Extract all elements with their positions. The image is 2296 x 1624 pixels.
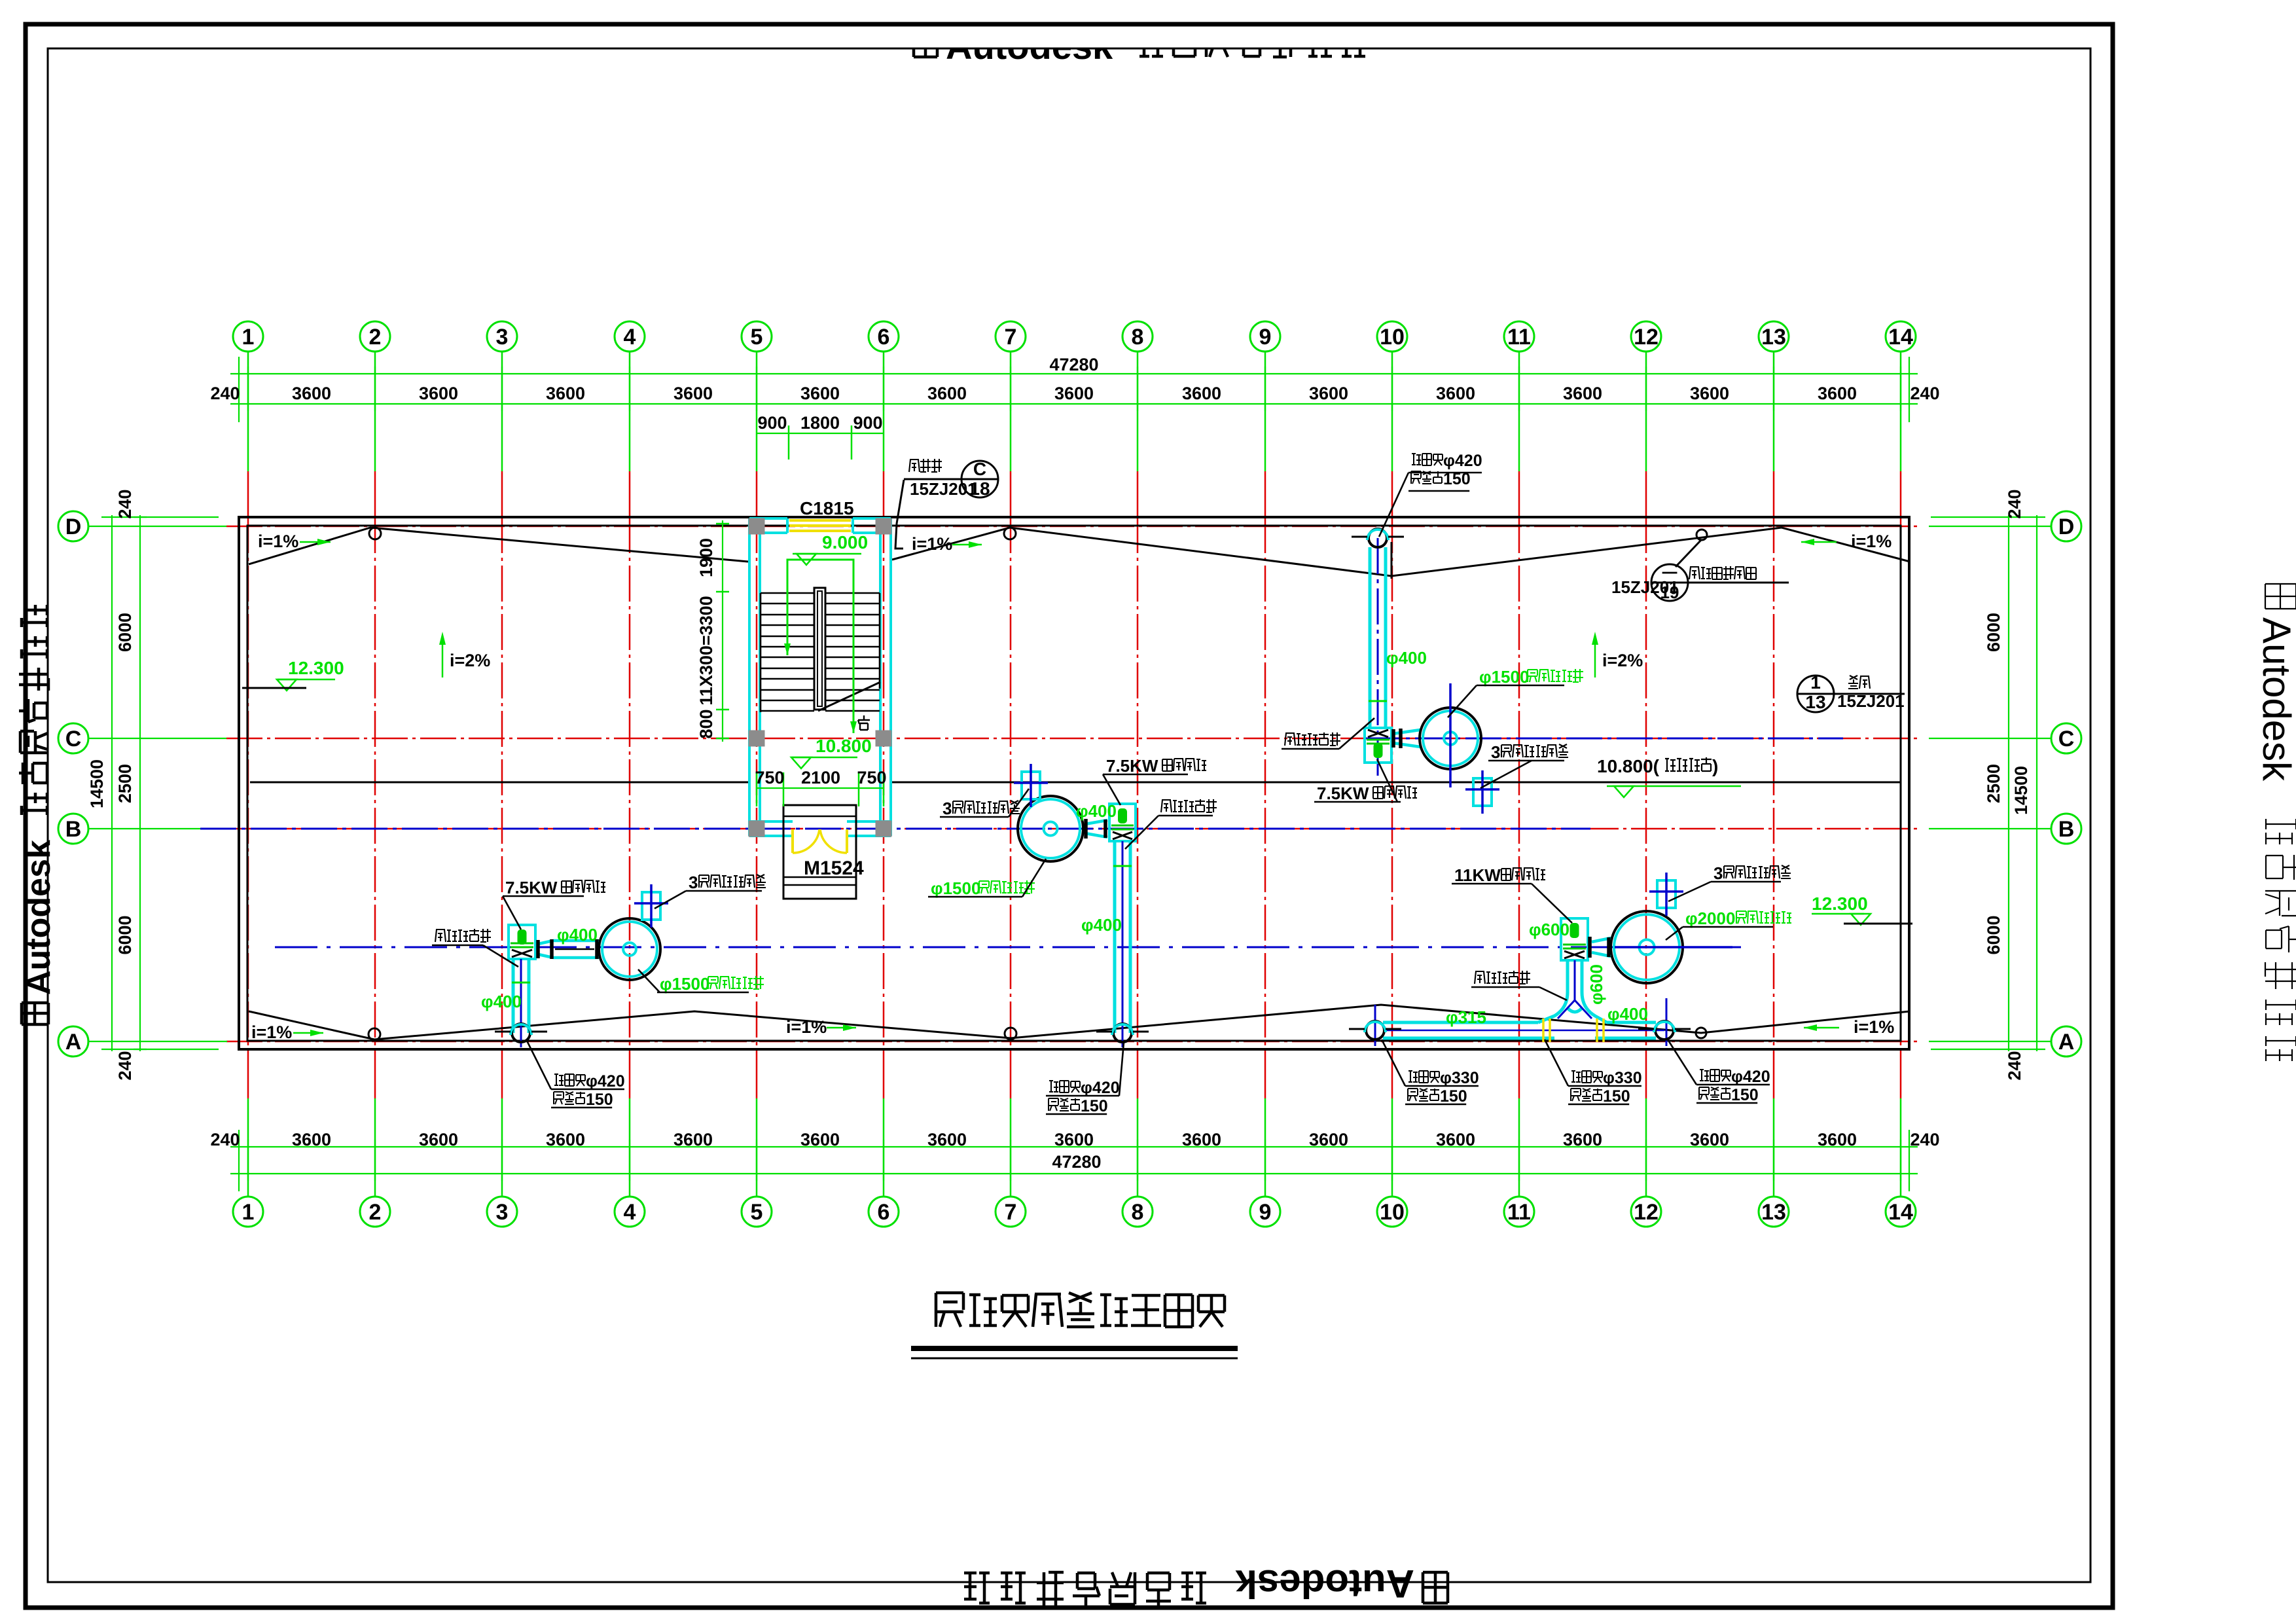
svg-text:3600: 3600	[419, 384, 458, 403]
svg-text:1800: 1800	[800, 413, 840, 433]
svg-text:6000: 6000	[115, 613, 135, 652]
svg-text:4: 4	[624, 1200, 636, 1225]
svg-text:240: 240	[2005, 1051, 2024, 1080]
svg-text:3600: 3600	[1182, 1130, 1221, 1149]
svg-text:φ315: φ315	[1446, 1007, 1486, 1027]
svg-text:14: 14	[1888, 325, 1913, 350]
svg-text:2: 2	[369, 325, 382, 350]
svg-text:φ400: φ400	[557, 925, 598, 945]
svg-text:6: 6	[878, 325, 890, 350]
svg-text:3600: 3600	[292, 1130, 331, 1149]
svg-text:750: 750	[755, 768, 784, 787]
svg-text:φ420: φ420	[586, 1072, 625, 1091]
svg-text:7.5KW: 7.5KW	[505, 878, 558, 897]
svg-text:φ1500: φ1500	[1479, 667, 1529, 687]
svg-text:47280: 47280	[1049, 355, 1098, 374]
svg-text:1: 1	[1810, 672, 1821, 693]
svg-text:900: 900	[853, 413, 882, 433]
svg-text:7.5KW: 7.5KW	[1317, 784, 1369, 803]
svg-text:i=1%: i=1%	[1851, 532, 1892, 551]
svg-text:10.800: 10.800	[816, 736, 872, 756]
svg-text:M1524: M1524	[804, 857, 864, 879]
svg-text:3600: 3600	[800, 1130, 840, 1149]
svg-text:2100: 2100	[801, 768, 840, 787]
svg-text:12: 12	[1634, 325, 1659, 350]
svg-text:240: 240	[1910, 384, 1939, 403]
svg-text:3600: 3600	[927, 384, 967, 403]
svg-text:3: 3	[1491, 742, 1500, 762]
svg-text:3600: 3600	[1054, 1130, 1094, 1149]
svg-text:φ600: φ600	[1587, 964, 1606, 1005]
svg-text:C: C	[65, 727, 82, 751]
svg-text:7: 7	[1005, 1200, 1017, 1225]
svg-text:): )	[1712, 756, 1718, 776]
svg-text:3600: 3600	[1563, 384, 1602, 403]
svg-text:A: A	[65, 1030, 82, 1055]
svg-text:3600: 3600	[1436, 384, 1475, 403]
svg-text:B: B	[65, 817, 82, 842]
svg-text:10: 10	[1380, 325, 1405, 350]
svg-text:i=2%: i=2%	[450, 651, 490, 670]
svg-text:φ1500: φ1500	[931, 878, 980, 898]
svg-text:Autodesk: Autodesk	[1235, 1562, 1414, 1606]
svg-text:240: 240	[115, 1051, 135, 1080]
svg-text:240: 240	[115, 489, 135, 518]
svg-text:Autodesk: Autodesk	[2255, 617, 2296, 782]
svg-text:φ2000: φ2000	[1685, 909, 1735, 928]
svg-text:150: 150	[1603, 1087, 1630, 1106]
svg-text:3600: 3600	[1054, 384, 1094, 403]
svg-text:15ZJ201: 15ZJ201	[1837, 691, 1905, 711]
svg-text:9: 9	[1259, 325, 1272, 350]
svg-text:7: 7	[1005, 325, 1017, 350]
svg-text:12.300: 12.300	[1812, 893, 1868, 914]
svg-text:3600: 3600	[1690, 384, 1729, 403]
svg-text:1900: 1900	[696, 538, 716, 577]
svg-text:φ400: φ400	[1081, 915, 1122, 935]
svg-text:12.300: 12.300	[288, 658, 344, 678]
svg-text:2500: 2500	[115, 764, 135, 803]
svg-text:900: 900	[757, 413, 787, 433]
svg-text:750: 750	[857, 768, 886, 787]
svg-text:C: C	[2058, 727, 2075, 751]
svg-text:i=2%: i=2%	[1602, 651, 1643, 670]
svg-text:6000: 6000	[115, 915, 135, 954]
svg-text:i=1%: i=1%	[251, 1022, 292, 1042]
svg-text:i=1%: i=1%	[912, 534, 952, 554]
svg-text:i=1%: i=1%	[1854, 1017, 1894, 1037]
svg-text:φ400: φ400	[1607, 1004, 1648, 1024]
svg-text:3: 3	[1713, 863, 1723, 883]
svg-text:14500: 14500	[87, 759, 107, 808]
svg-text:2500: 2500	[1984, 764, 2003, 803]
svg-text:A: A	[2058, 1030, 2075, 1055]
svg-text:5: 5	[751, 325, 763, 350]
svg-text:9.000: 9.000	[822, 532, 868, 552]
svg-text:6000: 6000	[1984, 915, 2003, 954]
svg-text:9: 9	[1259, 1200, 1272, 1225]
svg-text:3: 3	[496, 1200, 509, 1225]
svg-text:3: 3	[942, 799, 952, 818]
svg-text:C1815: C1815	[800, 498, 854, 518]
svg-text:φ400: φ400	[481, 992, 522, 1011]
svg-text:2: 2	[369, 1200, 382, 1225]
svg-text:10: 10	[1380, 1200, 1405, 1225]
svg-text:3600: 3600	[1690, 1130, 1729, 1149]
svg-text:15ZJ201: 15ZJ201	[1611, 577, 1679, 597]
svg-text:14500: 14500	[2011, 766, 2031, 815]
svg-text:φ1500: φ1500	[660, 974, 709, 994]
svg-text:800: 800	[696, 709, 716, 738]
svg-text:3600: 3600	[800, 384, 840, 403]
svg-text:13: 13	[1761, 325, 1786, 350]
svg-text:3600: 3600	[546, 384, 585, 403]
svg-text:3600: 3600	[546, 1130, 585, 1149]
svg-text:3600: 3600	[1309, 384, 1348, 403]
svg-text:3: 3	[496, 325, 509, 350]
svg-text:3600: 3600	[673, 384, 713, 403]
svg-text:φ420: φ420	[1443, 452, 1482, 470]
svg-text:15ZJ201: 15ZJ201	[910, 479, 977, 499]
svg-text:6000: 6000	[1984, 613, 2003, 652]
svg-text:i=1%: i=1%	[258, 532, 298, 551]
svg-text:240: 240	[210, 384, 240, 403]
svg-text:150: 150	[1731, 1086, 1759, 1104]
svg-text:3600: 3600	[1309, 1130, 1348, 1149]
svg-text:φ330: φ330	[1440, 1069, 1479, 1087]
svg-text:1: 1	[242, 1200, 255, 1225]
svg-text:11: 11	[1507, 325, 1531, 350]
svg-text:C: C	[973, 459, 986, 479]
svg-text:B: B	[2058, 817, 2075, 842]
svg-text:11KW: 11KW	[1454, 865, 1501, 885]
svg-text:i=1%: i=1%	[786, 1017, 827, 1037]
svg-text:4: 4	[624, 325, 636, 350]
svg-text:3600: 3600	[927, 1130, 967, 1149]
svg-text:6: 6	[878, 1200, 890, 1225]
svg-text:240: 240	[1910, 1130, 1939, 1149]
svg-text:150: 150	[586, 1091, 613, 1109]
svg-text:3600: 3600	[1563, 1130, 1602, 1149]
svg-text:11: 11	[1507, 1200, 1531, 1225]
svg-text:10.800(: 10.800(	[1597, 756, 1660, 776]
svg-text:φ400: φ400	[1076, 801, 1117, 821]
svg-text:D: D	[2058, 514, 2075, 539]
svg-text:3600: 3600	[1182, 384, 1221, 403]
svg-text:φ400: φ400	[1386, 648, 1427, 668]
svg-text:7.5KW: 7.5KW	[1106, 756, 1158, 776]
svg-text:D: D	[65, 514, 82, 539]
svg-text:8: 8	[1132, 1200, 1144, 1225]
svg-text:240: 240	[2005, 489, 2024, 518]
svg-text:5: 5	[751, 1200, 763, 1225]
svg-text:13: 13	[1805, 692, 1825, 712]
svg-text:47280: 47280	[1052, 1152, 1101, 1172]
svg-text:11X300=3300: 11X300=3300	[696, 596, 716, 705]
svg-text:φ420: φ420	[1081, 1079, 1120, 1097]
svg-text:3600: 3600	[1436, 1130, 1475, 1149]
svg-text:φ330: φ330	[1603, 1069, 1642, 1087]
svg-text:φ600: φ600	[1529, 920, 1570, 939]
svg-text:8: 8	[1132, 325, 1144, 350]
svg-text:13: 13	[1761, 1200, 1786, 1225]
svg-text:3600: 3600	[1818, 384, 1857, 403]
svg-text:150: 150	[1440, 1087, 1467, 1106]
svg-text:1: 1	[242, 325, 255, 350]
svg-text:14: 14	[1888, 1200, 1913, 1225]
svg-text:3600: 3600	[1818, 1130, 1857, 1149]
svg-text:240: 240	[210, 1130, 240, 1149]
svg-text:φ420: φ420	[1731, 1068, 1770, 1086]
svg-text:3600: 3600	[292, 384, 331, 403]
svg-text:3600: 3600	[673, 1130, 713, 1149]
svg-text:3600: 3600	[419, 1130, 458, 1149]
svg-text:150: 150	[1081, 1097, 1108, 1115]
svg-text:12: 12	[1634, 1200, 1659, 1225]
svg-text:3: 3	[689, 873, 698, 892]
